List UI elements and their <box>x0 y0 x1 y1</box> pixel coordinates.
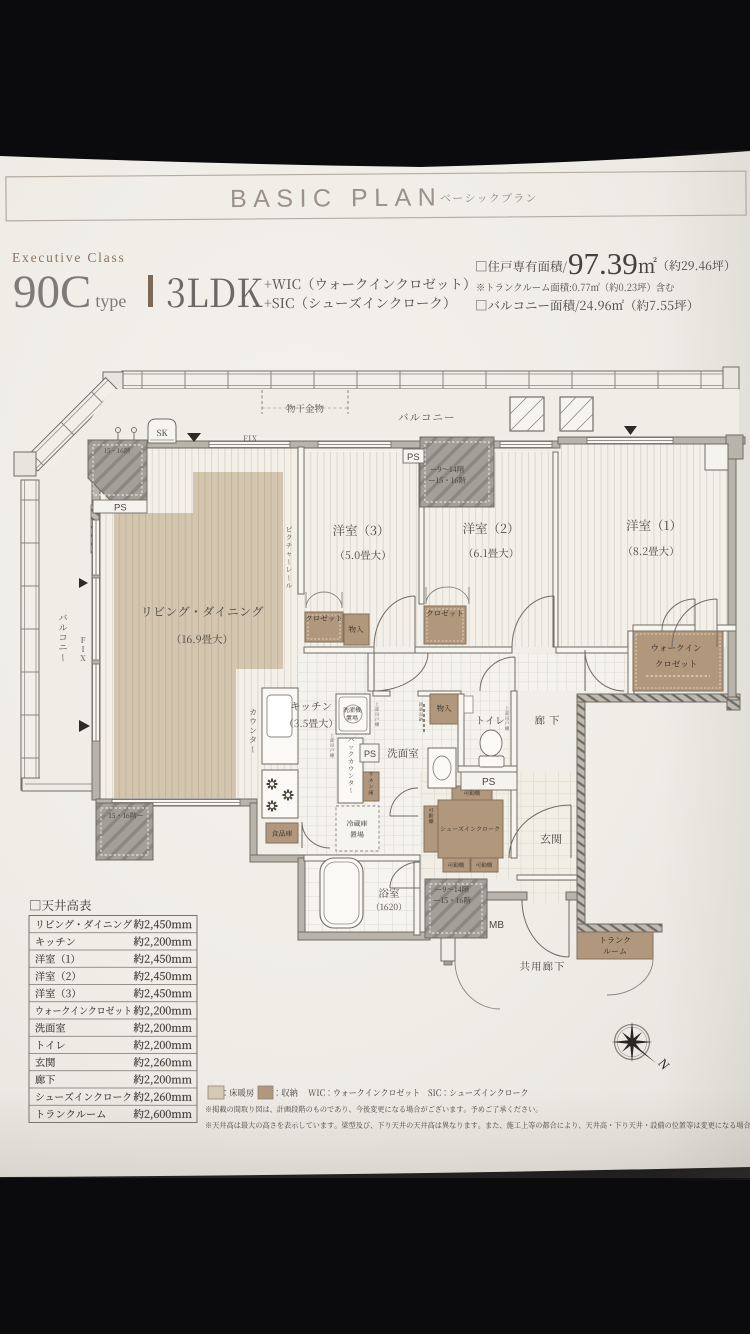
svg-text:PS: PS <box>482 777 496 788</box>
svg-text:PS: PS <box>114 503 127 514</box>
svg-text:MB: MB <box>489 920 504 931</box>
svg-text:PS: PS <box>364 749 376 759</box>
svg-text:BASIC PLAN: BASIC PLAN <box>230 183 442 213</box>
svg-text:PS: PS <box>407 452 420 463</box>
svg-text:Executive Class: Executive Class <box>12 250 126 265</box>
svg-text:97.39: 97.39 <box>568 246 638 281</box>
